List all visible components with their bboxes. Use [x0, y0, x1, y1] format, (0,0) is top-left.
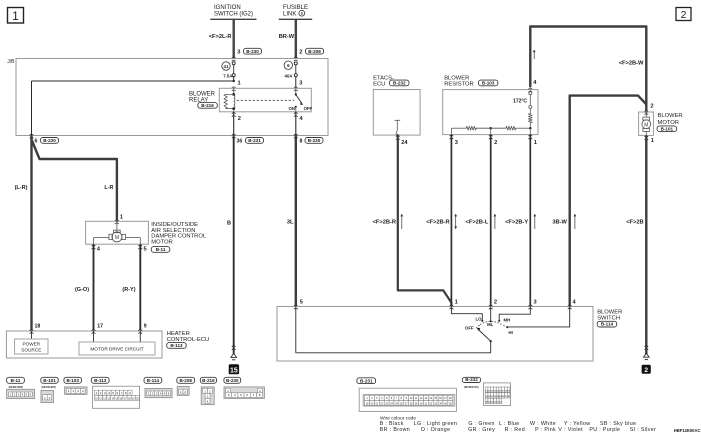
svg-text:V : Violet: V : Violet — [558, 427, 583, 433]
svg-text:IGNITION: IGNITION — [214, 5, 241, 11]
svg-text:3L: 3L — [287, 220, 294, 226]
svg-text:B-231: B-231 — [248, 138, 261, 143]
svg-text:1: 1 — [455, 299, 458, 305]
svg-text:2: 2 — [238, 116, 241, 122]
svg-text:(R-Y): (R-Y) — [122, 287, 135, 293]
svg-text:MOTOR: MOTOR — [151, 239, 172, 245]
svg-text:SWITCH: SWITCH — [597, 316, 620, 322]
svg-text:41: 41 — [224, 64, 229, 69]
svg-text:B-11: B-11 — [156, 247, 166, 252]
svg-text:B-103: B-103 — [482, 81, 495, 86]
svg-text:B-232: B-232 — [393, 81, 406, 86]
svg-text:B-11: B-11 — [11, 378, 21, 383]
svg-text:MH: MH — [504, 318, 511, 323]
svg-text:B-114: B-114 — [601, 322, 614, 327]
svg-text:(L-R): (L-R) — [15, 185, 28, 191]
svg-text:1: 1 — [534, 140, 537, 146]
svg-text:B: B — [227, 220, 231, 226]
svg-text:P : Pink: P : Pink — [535, 427, 556, 433]
svg-text:1: 1 — [12, 9, 19, 23]
svg-text:1: 1 — [238, 80, 241, 86]
svg-text:2: 2 — [650, 104, 653, 110]
svg-text:(MU801325): (MU801325) — [42, 385, 57, 389]
svg-text:2: 2 — [494, 140, 497, 146]
svg-text:7.5A: 7.5A — [223, 73, 233, 78]
svg-text:LO: LO — [476, 316, 483, 321]
svg-text:MOTOR DRIVE CIRCUIT: MOTOR DRIVE CIRCUIT — [90, 347, 143, 352]
svg-text:B-103: B-103 — [66, 378, 79, 383]
svg-text:B-232: B-232 — [465, 377, 478, 382]
svg-text:BLOWER: BLOWER — [658, 113, 683, 119]
svg-text:<F>2B-R: <F>2B-R — [426, 220, 449, 226]
svg-text:2: 2 — [299, 50, 302, 56]
svg-text:B-231: B-231 — [360, 378, 373, 383]
svg-text:<F>2B-Y: <F>2B-Y — [505, 220, 528, 226]
svg-text:40A: 40A — [285, 73, 294, 78]
svg-text:8: 8 — [300, 139, 303, 145]
svg-text:B-113: B-113 — [170, 343, 183, 348]
svg-text:9: 9 — [144, 324, 147, 330]
svg-text:1: 1 — [120, 215, 123, 221]
svg-text:FUSIBLE: FUSIBLE — [283, 5, 308, 11]
svg-text:<F>2B-L: <F>2B-L — [466, 220, 489, 226]
svg-text:B-230: B-230 — [246, 49, 259, 54]
svg-text:3: 3 — [237, 50, 240, 56]
svg-text:BR-W: BR-W — [279, 34, 295, 40]
svg-text:B-113: B-113 — [94, 378, 107, 383]
svg-text:3: 3 — [455, 140, 458, 146]
svg-text:(G-O): (G-O) — [75, 287, 89, 293]
svg-text:3: 3 — [534, 299, 537, 305]
svg-text:ECU: ECU — [373, 81, 385, 87]
svg-text:B-216: B-216 — [201, 103, 214, 108]
svg-text:B-114: B-114 — [147, 378, 160, 383]
svg-text:5: 5 — [144, 247, 147, 253]
svg-text:J/B: J/B — [7, 59, 15, 65]
svg-text:HBF12E00AC: HBF12E00AC — [674, 428, 701, 433]
svg-text:B-216: B-216 — [202, 378, 215, 383]
svg-text:GR : Grey: GR : Grey — [468, 427, 495, 433]
svg-text:36: 36 — [237, 139, 243, 145]
svg-text:<F>2L-R: <F>2L-R — [209, 34, 232, 40]
svg-text:SI : Silver: SI : Silver — [630, 427, 657, 433]
svg-text:3B-W: 3B-W — [552, 220, 567, 226]
svg-text:6: 6 — [35, 139, 38, 145]
svg-text:B-230: B-230 — [308, 138, 321, 143]
svg-text:B-208: B-208 — [308, 49, 321, 54]
svg-text:OFF: OFF — [465, 325, 474, 330]
svg-text:SOURCE: SOURCE — [21, 347, 41, 352]
svg-text:1: 1 — [651, 138, 654, 144]
svg-text:BLOWER: BLOWER — [444, 75, 469, 81]
svg-text:SWITCH (IG2): SWITCH (IG2) — [214, 12, 253, 18]
svg-text:R : Red: R : Red — [505, 427, 525, 433]
svg-text:B-101: B-101 — [43, 378, 56, 383]
svg-text:18: 18 — [35, 324, 41, 330]
svg-text:MOTOR: MOTOR — [658, 120, 679, 126]
svg-text:(MU801580): (MU801580) — [9, 385, 24, 389]
svg-text:PU : Purple: PU : Purple — [589, 427, 620, 433]
svg-text:2: 2 — [681, 9, 687, 21]
svg-text:M: M — [644, 122, 648, 128]
svg-text:2: 2 — [494, 299, 497, 305]
svg-text:3: 3 — [299, 80, 302, 86]
svg-text:HI: HI — [509, 330, 513, 335]
svg-text:<F>2B-R: <F>2B-R — [373, 220, 396, 226]
svg-text:5: 5 — [300, 299, 303, 305]
svg-text:M: M — [115, 235, 119, 241]
svg-text:B-230: B-230 — [226, 378, 239, 383]
svg-text:172°C: 172°C — [513, 98, 527, 104]
svg-text:RESISTOR: RESISTOR — [444, 81, 474, 87]
svg-text:POWER: POWER — [22, 342, 40, 347]
svg-text:OFF: OFF — [304, 106, 313, 111]
svg-text:15: 15 — [230, 368, 238, 375]
svg-text:BR : Brown: BR : Brown — [380, 427, 410, 433]
svg-text:B-101: B-101 — [661, 126, 674, 131]
svg-text:BLOWER: BLOWER — [189, 91, 216, 97]
svg-text:24: 24 — [401, 140, 408, 146]
svg-text:ON: ON — [289, 106, 295, 111]
svg-text:L-R: L-R — [104, 185, 113, 191]
svg-text:ML: ML — [487, 322, 494, 327]
svg-text:B-208: B-208 — [179, 378, 192, 383]
svg-text:LINK: LINK — [283, 12, 296, 18]
svg-text:O : Orange: O : Orange — [421, 427, 451, 433]
svg-text:B-230: B-230 — [43, 138, 56, 143]
svg-text:17: 17 — [97, 324, 103, 330]
svg-text:<F>2B: <F>2B — [626, 220, 643, 226]
svg-text:<F>2B-W: <F>2B-W — [619, 60, 644, 66]
svg-text:(MU803746): (MU803746) — [464, 385, 479, 389]
svg-text:2: 2 — [644, 367, 648, 374]
